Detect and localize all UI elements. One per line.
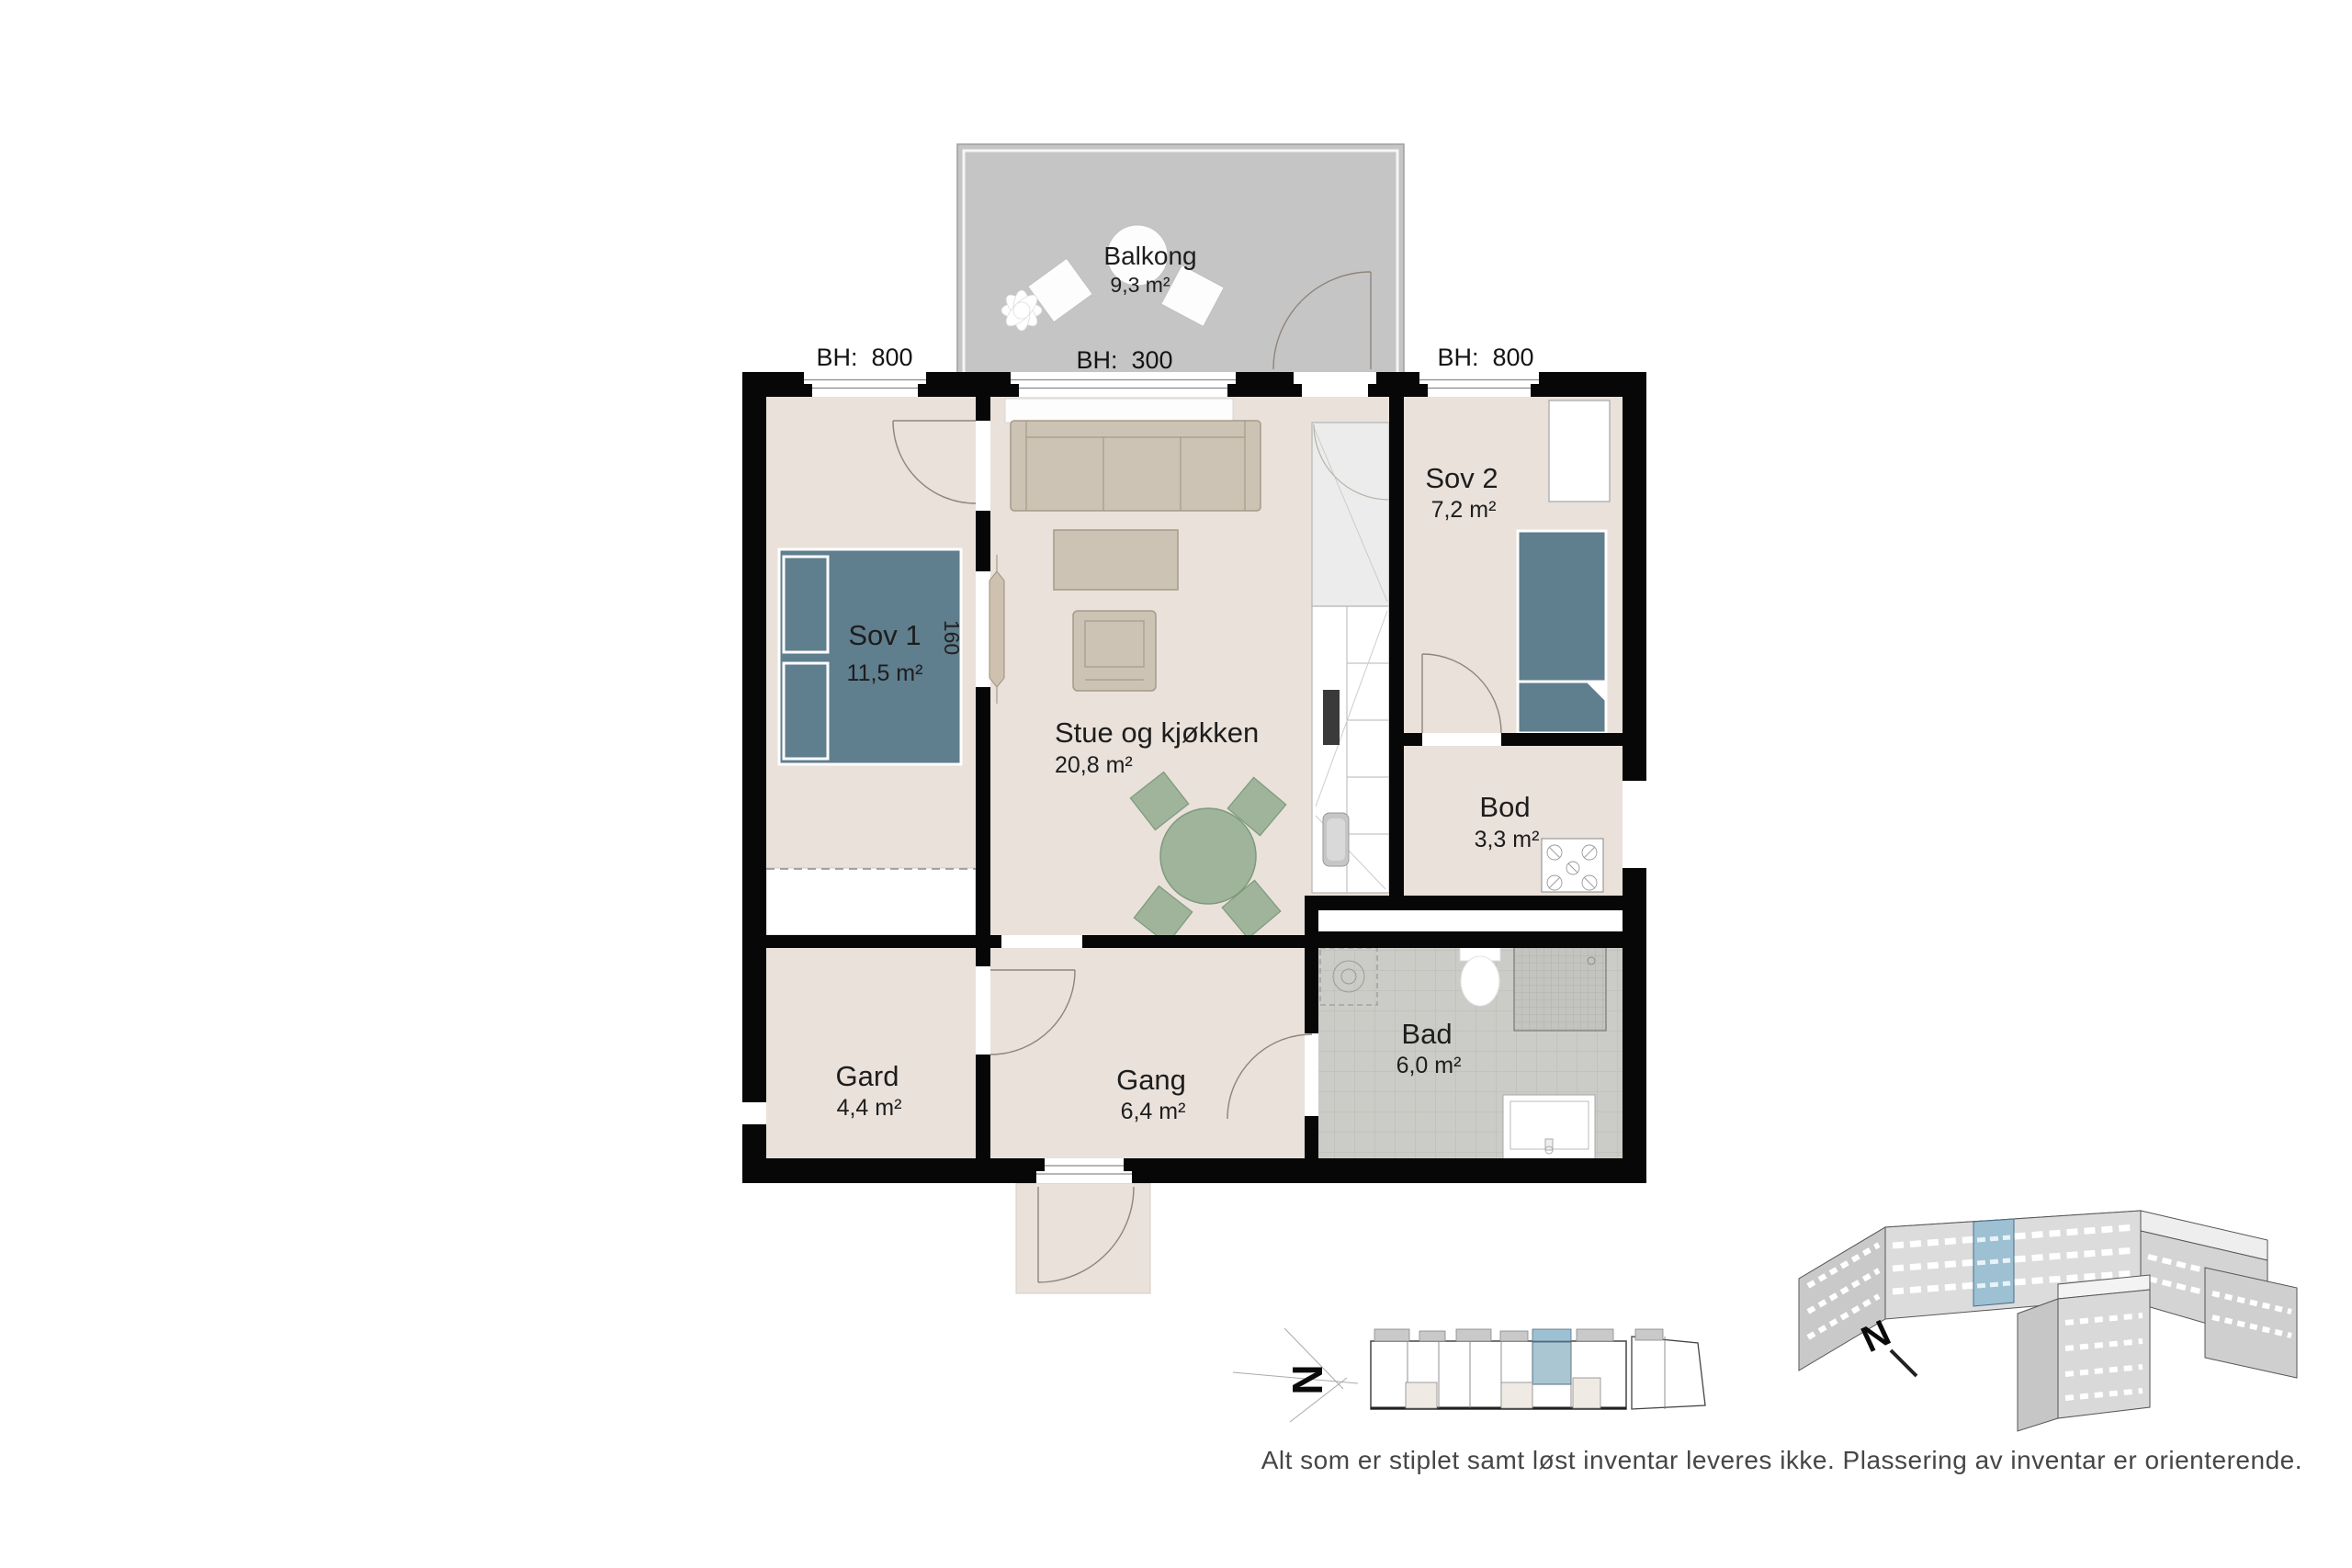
wall-bad-top	[1318, 931, 1623, 948]
bh-label-left: BH: 800	[816, 344, 912, 371]
room-label-gang: Gang	[1116, 1064, 1186, 1096]
room-label-sov1: Sov 1	[848, 619, 921, 651]
bed-width-dimension: 160	[940, 620, 964, 655]
sofa	[1011, 421, 1261, 511]
armchair	[1073, 611, 1156, 691]
door-gap-bad	[1305, 1033, 1318, 1116]
stove-icon	[1323, 690, 1340, 745]
wall-right	[1623, 372, 1646, 1183]
left-wall-notch	[742, 1102, 766, 1124]
door-gap-gard	[976, 966, 990, 1055]
window-sov1	[804, 372, 926, 397]
shaft-niche	[1318, 910, 1623, 931]
balcony-plant	[1001, 290, 1042, 331]
north-arrow: N	[1233, 1328, 1358, 1422]
wall-bottom	[742, 1158, 1646, 1183]
sov2-bed	[1518, 531, 1606, 733]
bh-label-middle: BH: 300	[1076, 346, 1172, 374]
wall-bod-bottom	[1305, 896, 1623, 910]
sov1-pillow-1	[784, 557, 828, 652]
room-label-sov2: Sov 2	[1425, 462, 1498, 494]
sov2-wardrobe	[1549, 400, 1610, 502]
room-area-sov2: 7,2 m²	[1431, 497, 1497, 523]
room-area-sov1: 11,5 m²	[847, 660, 923, 686]
room-area-bad: 6,0 m²	[1396, 1053, 1462, 1078]
window-stue	[1011, 372, 1236, 397]
floor-plan-svg: Balkong 9,3 m²	[0, 0, 2352, 1568]
room-area-balkong: 9,3 m²	[1110, 273, 1170, 297]
room-label-bad: Bad	[1401, 1018, 1452, 1050]
wall-left	[742, 372, 766, 1183]
shower-area	[1514, 946, 1606, 1031]
toilet-icon	[1460, 946, 1500, 1006]
room-area-gang: 6,4 m²	[1121, 1099, 1186, 1124]
bod-furniture	[1542, 839, 1603, 892]
right-wall-niche	[1623, 781, 1646, 868]
wall-stue-sov2	[1389, 397, 1404, 896]
door-gap-sov2	[1422, 733, 1501, 746]
site-highlight-balcony	[1532, 1329, 1571, 1341]
room-area-bod: 3,3 m²	[1475, 827, 1540, 852]
site-highlighted-unit	[1532, 1342, 1571, 1384]
north-arrow-3d	[1891, 1350, 1917, 1376]
bh-label-right: BH: 800	[1437, 344, 1533, 371]
room-label-bod: Bod	[1479, 791, 1530, 823]
room-area-gard: 4,4 m²	[837, 1095, 902, 1121]
wall-sov1-gard	[766, 935, 976, 948]
sliding-door-panel	[989, 555, 1004, 704]
site-balcony-tabs	[1374, 1329, 1613, 1341]
coffee-table	[1054, 530, 1178, 590]
sov1-pillow-2	[784, 663, 828, 759]
disclaimer-text: Alt som er stiplet samt løst inventar le…	[1261, 1446, 2302, 1474]
room-label-gard: Gard	[836, 1060, 899, 1092]
dining-table	[1160, 808, 1256, 904]
room-area-stue: 20,8 m²	[1055, 752, 1133, 778]
window-sill	[1005, 399, 1233, 423]
sink-basin	[1327, 818, 1345, 861]
vanity-icon	[1503, 1095, 1595, 1159]
window-sov2	[1419, 372, 1539, 397]
site-strip-plan	[1371, 1329, 1705, 1409]
entrance-vestibule	[1016, 1183, 1150, 1293]
kitchen	[1312, 423, 1389, 893]
room-label-balkong: Balkong	[1103, 242, 1196, 270]
door-gap-sov1	[976, 421, 990, 511]
sov1-wardrobe	[766, 868, 976, 935]
balcony: Balkong 9,3 m²	[957, 144, 1404, 374]
balcony-door-opening	[1294, 372, 1376, 397]
slider-gap-sov1	[976, 571, 990, 687]
floorplan-page: Balkong 9,3 m²	[0, 0, 2352, 1568]
north-label: N	[1283, 1364, 1331, 1394]
room-label-stue: Stue og kjøkken	[1055, 716, 1259, 749]
building-3d-view: N	[1799, 1211, 2297, 1431]
entrance-opening	[1036, 1158, 1132, 1183]
sov1-furniture	[766, 549, 976, 935]
site-right-wing	[1632, 1337, 1705, 1409]
vestibule-floor	[1016, 1183, 1150, 1293]
passage-stue-gang	[1001, 935, 1082, 948]
